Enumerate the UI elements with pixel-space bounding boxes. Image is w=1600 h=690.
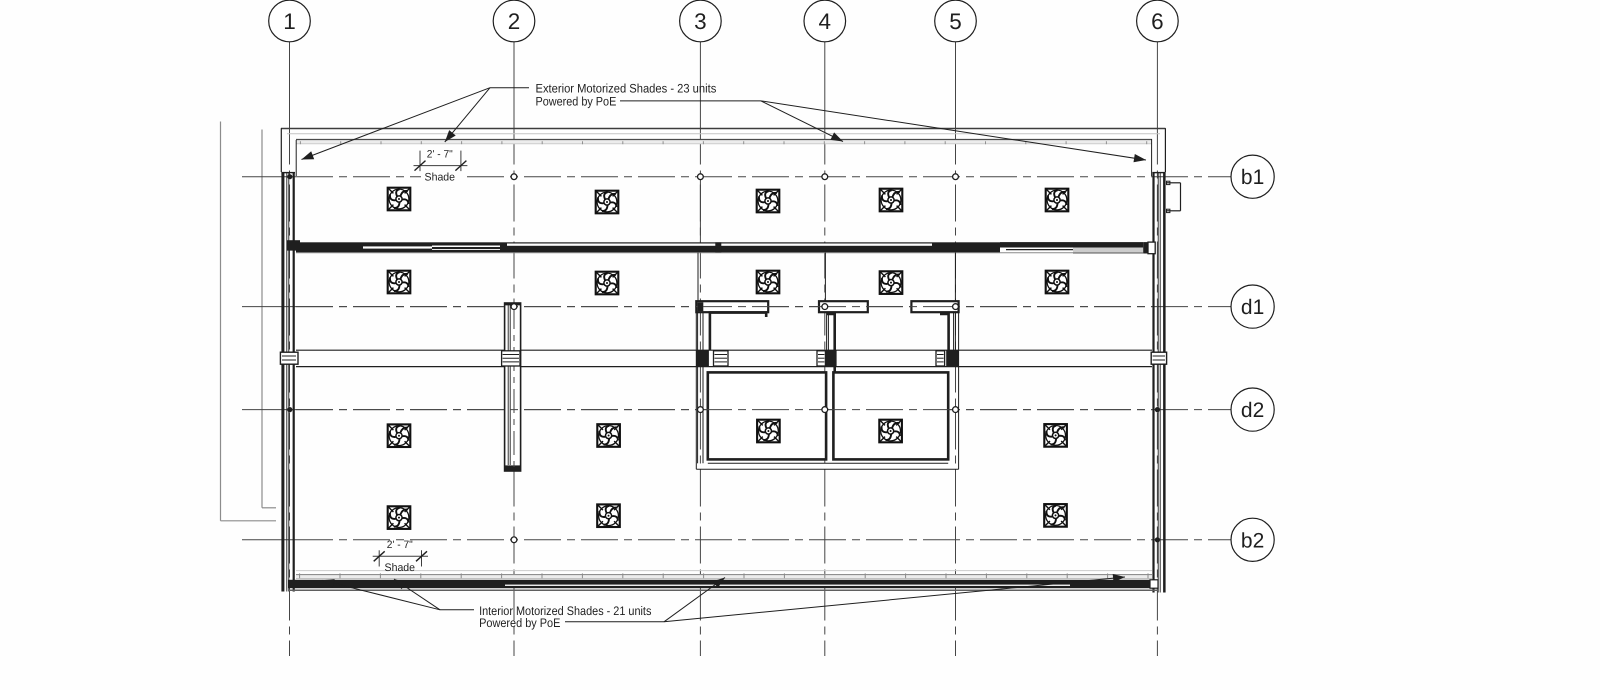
svg-text:5: 5 <box>949 9 962 34</box>
svg-text:1: 1 <box>283 9 296 34</box>
svg-text:3: 3 <box>694 9 707 34</box>
svg-text:Powered by PoE: Powered by PoE <box>536 94 617 108</box>
svg-text:Powered by PoE: Powered by PoE <box>479 616 560 630</box>
svg-text:b2: b2 <box>1241 529 1264 552</box>
svg-text:6: 6 <box>1151 9 1164 34</box>
svg-text:2' - 7": 2' - 7" <box>387 539 413 551</box>
svg-text:2: 2 <box>508 9 521 34</box>
svg-text:4: 4 <box>819 9 832 34</box>
svg-text:Shade: Shade <box>385 562 416 574</box>
svg-text:b1: b1 <box>1241 166 1264 189</box>
svg-text:Shade: Shade <box>425 171 456 183</box>
svg-text:d2: d2 <box>1241 399 1264 422</box>
svg-text:d1: d1 <box>1241 296 1264 319</box>
svg-text:2' - 7": 2' - 7" <box>427 149 453 161</box>
